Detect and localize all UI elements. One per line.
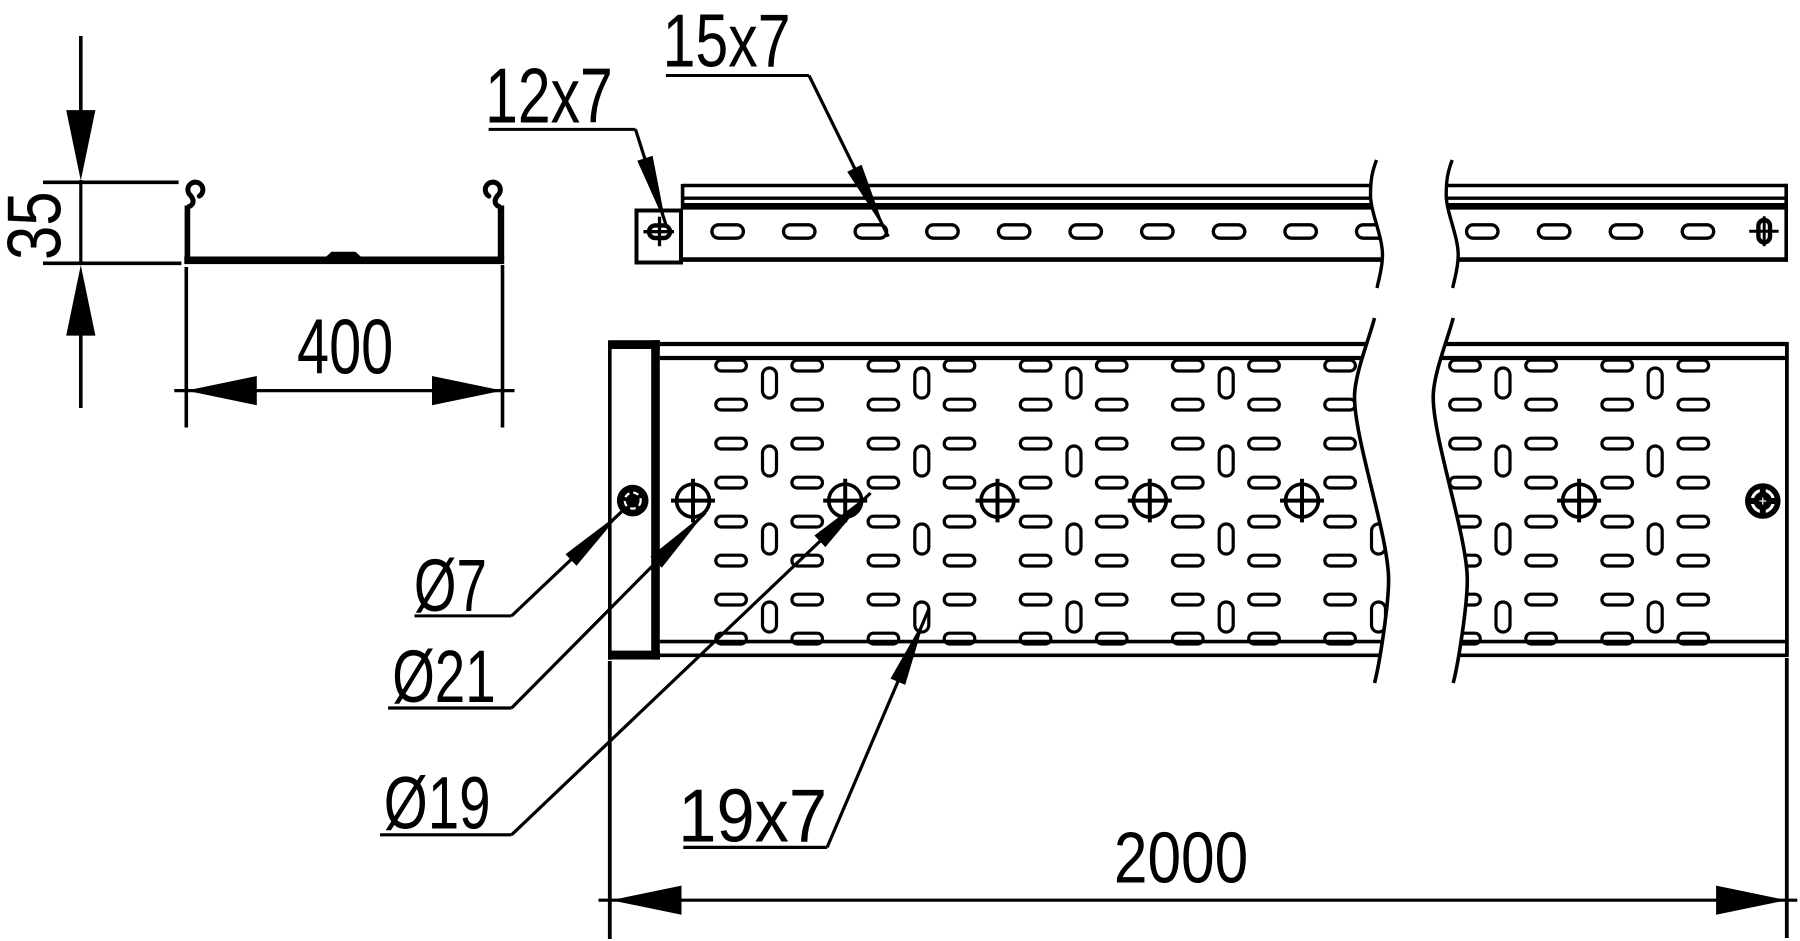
svg-text:Ø19: Ø19	[384, 762, 491, 845]
svg-text:Ø21: Ø21	[392, 635, 496, 718]
svg-text:35: 35	[0, 191, 78, 260]
svg-text:400: 400	[297, 302, 393, 390]
svg-text:15x7: 15x7	[663, 0, 791, 82]
svg-text:19x7: 19x7	[678, 774, 827, 858]
svg-text:12x7: 12x7	[485, 52, 613, 140]
svg-text:2000: 2000	[1114, 817, 1248, 898]
